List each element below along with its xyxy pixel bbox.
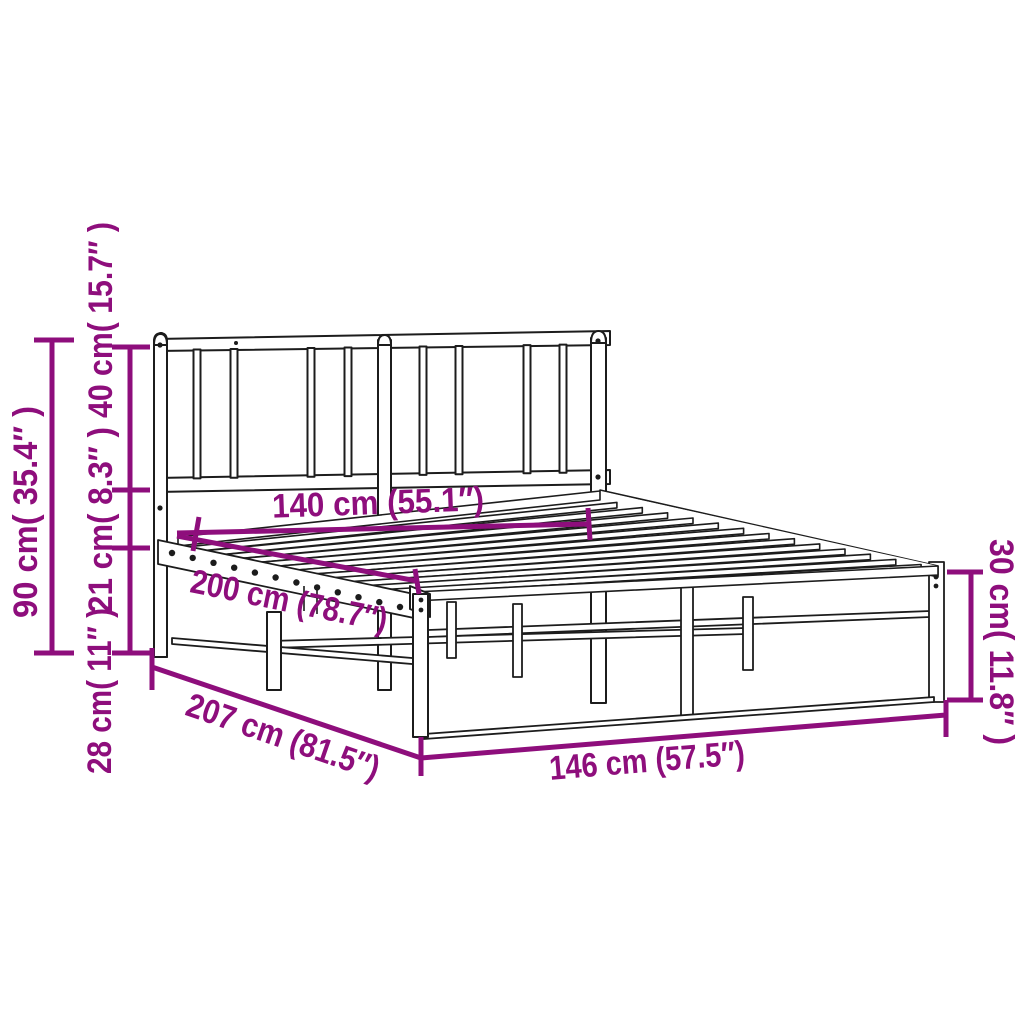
bed-illustration (154, 331, 944, 739)
dim-mattress-width-label: 140 cm (55.1″) (271, 480, 484, 525)
bed-frame-diagram: 90 cm( 35.4″ ) 40 cm( 15.7″ ) 21 cm( 8.3… (0, 0, 1024, 1024)
leg-foot-left (413, 594, 428, 737)
leg-support-2 (513, 604, 522, 677)
headboard-center-post-cap (378, 335, 391, 345)
dim-total-height-label: 90 cm( 35.4″ ) (7, 406, 45, 618)
dim-frame-width-label: 146 cm (57.5″) (548, 734, 746, 788)
leg-support-1 (447, 602, 456, 658)
dim-platform-height-line (947, 572, 983, 700)
dim-rail-to-headboard-label: 21 cm( 8.3″ ) (82, 427, 120, 613)
leg-foot-right (929, 562, 944, 702)
dim-platform-height-label: 30 cm( 11.8″ ) (982, 539, 1020, 745)
headboard-left-post-body (154, 340, 167, 657)
leg-mid-far (681, 585, 693, 718)
product-dimension-diagram: 90 cm( 35.4″ ) 40 cm( 15.7″ ) 21 cm( 8.3… (0, 0, 1024, 1024)
dim-headboard-height-label: 40 cm( 15.7″ ) (82, 222, 120, 418)
dim-floor-to-rail-label: 28 cm( 11″ ) (81, 608, 119, 774)
floor-stretcher (424, 697, 934, 739)
leg-mid-near (267, 612, 281, 690)
leg-far-side (743, 597, 753, 670)
